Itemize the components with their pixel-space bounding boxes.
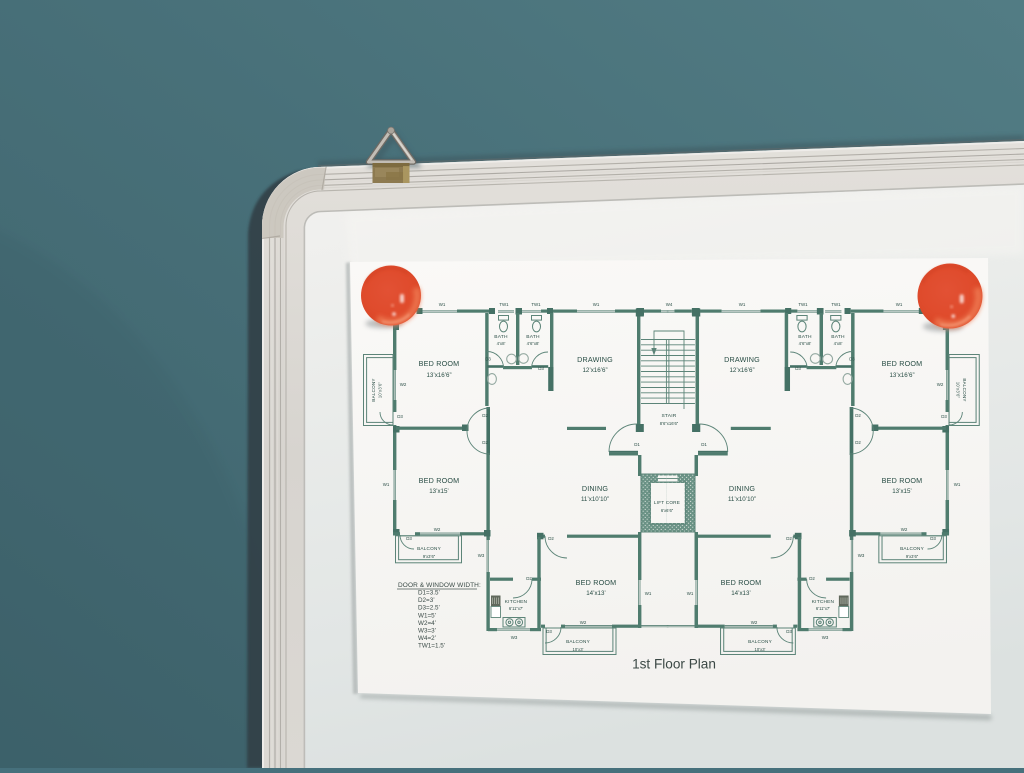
svg-text:W2=4’: W2=4’	[418, 620, 437, 627]
svg-text:W1: W1	[439, 302, 446, 307]
svg-text:BALCONY: BALCONY	[900, 546, 924, 551]
svg-text:D3: D3	[538, 366, 544, 371]
svg-text:TW1=1.5’: TW1=1.5’	[418, 643, 446, 650]
svg-text:BATH: BATH	[798, 334, 812, 340]
svg-text:13’x16’6”: 13’x16’6”	[889, 372, 914, 379]
svg-text:D2: D2	[482, 440, 488, 445]
svg-text:11’x10’10”: 11’x10’10”	[581, 496, 609, 503]
svg-text:W2: W2	[580, 620, 587, 625]
svg-text:D2: D2	[855, 440, 861, 445]
svg-text:8’6”x16’6”: 8’6”x16’6”	[660, 421, 679, 426]
svg-text:TW1: TW1	[831, 302, 841, 307]
svg-text:D3: D3	[849, 357, 855, 362]
svg-text:BED ROOM: BED ROOM	[419, 476, 460, 485]
svg-text:BALCONY: BALCONY	[371, 378, 376, 401]
svg-text:W1: W1	[739, 302, 746, 307]
svg-text:6’x6’6”: 6’x6’6”	[661, 508, 674, 513]
svg-text:13’x15’: 13’x15’	[892, 488, 912, 495]
svg-text:W3: W3	[478, 553, 485, 558]
svg-text:10’x3’6”: 10’x3’6”	[378, 381, 383, 398]
svg-text:W4=2’: W4=2’	[418, 635, 437, 642]
svg-text:KITCHEN: KITCHEN	[505, 599, 528, 605]
svg-text:W1: W1	[687, 591, 694, 596]
svg-text:D3=2.5’: D3=2.5’	[418, 605, 440, 612]
svg-text:4’x8’: 4’x8’	[497, 341, 506, 346]
svg-text:D1: D1	[634, 442, 640, 447]
svg-text:D3: D3	[406, 536, 412, 541]
svg-text:D1=3.5’: D1=3.5’	[418, 590, 440, 597]
svg-text:STAIR: STAIR	[661, 413, 676, 419]
svg-text:6’11”x7’: 6’11”x7’	[816, 606, 830, 611]
svg-text:D1: D1	[701, 442, 707, 447]
svg-text:13’x16’6”: 13’x16’6”	[426, 372, 451, 379]
svg-text:10’x3’: 10’x3’	[755, 647, 766, 652]
svg-text:9’x3’6”: 9’x3’6”	[906, 554, 919, 559]
svg-text:14’x13’: 14’x13’	[731, 590, 751, 597]
svg-text:BALCONY: BALCONY	[417, 546, 441, 551]
svg-text:DOOR & WINDOW WIDTH:: DOOR & WINDOW WIDTH:	[398, 582, 481, 589]
svg-text:BATH: BATH	[526, 334, 540, 340]
svg-text:D3: D3	[485, 357, 491, 362]
svg-text:14’x13’: 14’x13’	[586, 590, 606, 597]
svg-text:1st Floor Plan: 1st Floor Plan	[632, 657, 716, 672]
svg-text:TW1: TW1	[798, 302, 808, 307]
svg-text:D3: D3	[397, 414, 403, 419]
svg-text:BED ROOM: BED ROOM	[419, 359, 460, 368]
svg-text:D3: D3	[941, 414, 947, 419]
svg-text:D2: D2	[809, 576, 815, 581]
svg-text:9’x3’6”: 9’x3’6”	[423, 554, 436, 559]
svg-text:BALCONY: BALCONY	[566, 639, 590, 644]
svg-text:W3: W3	[511, 635, 518, 640]
svg-text:BED ROOM: BED ROOM	[882, 359, 923, 368]
svg-text:W2: W2	[901, 527, 908, 532]
svg-text:DRAWING: DRAWING	[724, 355, 760, 364]
svg-text:12’x16’6”: 12’x16’6”	[729, 367, 754, 374]
svg-text:W1: W1	[645, 591, 652, 596]
svg-text:D2: D2	[526, 576, 532, 581]
svg-text:BED ROOM: BED ROOM	[576, 578, 617, 587]
svg-text:4’6”x8’: 4’6”x8’	[527, 341, 540, 346]
svg-text:DINING: DINING	[582, 484, 609, 493]
svg-text:TW1: TW1	[531, 302, 541, 307]
svg-text:W1: W1	[383, 482, 390, 487]
svg-text:BALCONY: BALCONY	[962, 378, 967, 401]
svg-text:W1: W1	[896, 302, 903, 307]
svg-text:D2: D2	[548, 536, 554, 541]
svg-text:DINING: DINING	[729, 484, 756, 493]
svg-text:D3: D3	[795, 366, 801, 371]
svg-text:DRAWING: DRAWING	[577, 355, 613, 364]
svg-text:D2: D2	[786, 536, 792, 541]
svg-text:BATH: BATH	[831, 334, 845, 340]
svg-text:TW1: TW1	[499, 302, 509, 307]
svg-text:4’6”x8’: 4’6”x8’	[799, 341, 812, 346]
svg-text:12’x16’6”: 12’x16’6”	[582, 367, 607, 374]
svg-text:W2: W2	[751, 620, 758, 625]
svg-text:D2: D2	[855, 413, 861, 418]
svg-text:BATH: BATH	[494, 334, 508, 340]
svg-text:LIFT CORE: LIFT CORE	[654, 500, 680, 505]
svg-text:10’x3’: 10’x3’	[573, 647, 584, 652]
svg-text:D3: D3	[930, 536, 936, 541]
svg-text:6’11”x7’: 6’11”x7’	[509, 606, 523, 611]
svg-text:W2: W2	[434, 527, 441, 532]
svg-text:KITCHEN: KITCHEN	[812, 599, 835, 605]
svg-text:10’x3’6”: 10’x3’6”	[956, 382, 961, 399]
svg-text:D3: D3	[546, 629, 552, 634]
svg-text:W1: W1	[593, 302, 600, 307]
svg-text:D3: D3	[786, 629, 792, 634]
svg-text:W3: W3	[822, 635, 829, 640]
svg-text:W3=3’: W3=3’	[418, 628, 437, 635]
svg-text:4’x8’: 4’x8’	[834, 341, 843, 346]
svg-text:BED ROOM: BED ROOM	[721, 578, 762, 587]
svg-text:D2=3’: D2=3’	[418, 597, 435, 604]
svg-text:13’x15’: 13’x15’	[429, 488, 449, 495]
svg-text:W2: W2	[400, 382, 407, 387]
svg-text:D2: D2	[482, 413, 488, 418]
svg-text:W4: W4	[666, 302, 673, 307]
svg-text:11’x10’10”: 11’x10’10”	[728, 496, 756, 503]
svg-text:W1: W1	[954, 482, 961, 487]
svg-text:BALCONY: BALCONY	[748, 639, 772, 644]
svg-text:BED ROOM: BED ROOM	[882, 476, 923, 485]
svg-text:W2: W2	[937, 382, 944, 387]
svg-text:W1=5’: W1=5’	[418, 612, 437, 619]
svg-text:W3: W3	[858, 553, 865, 558]
